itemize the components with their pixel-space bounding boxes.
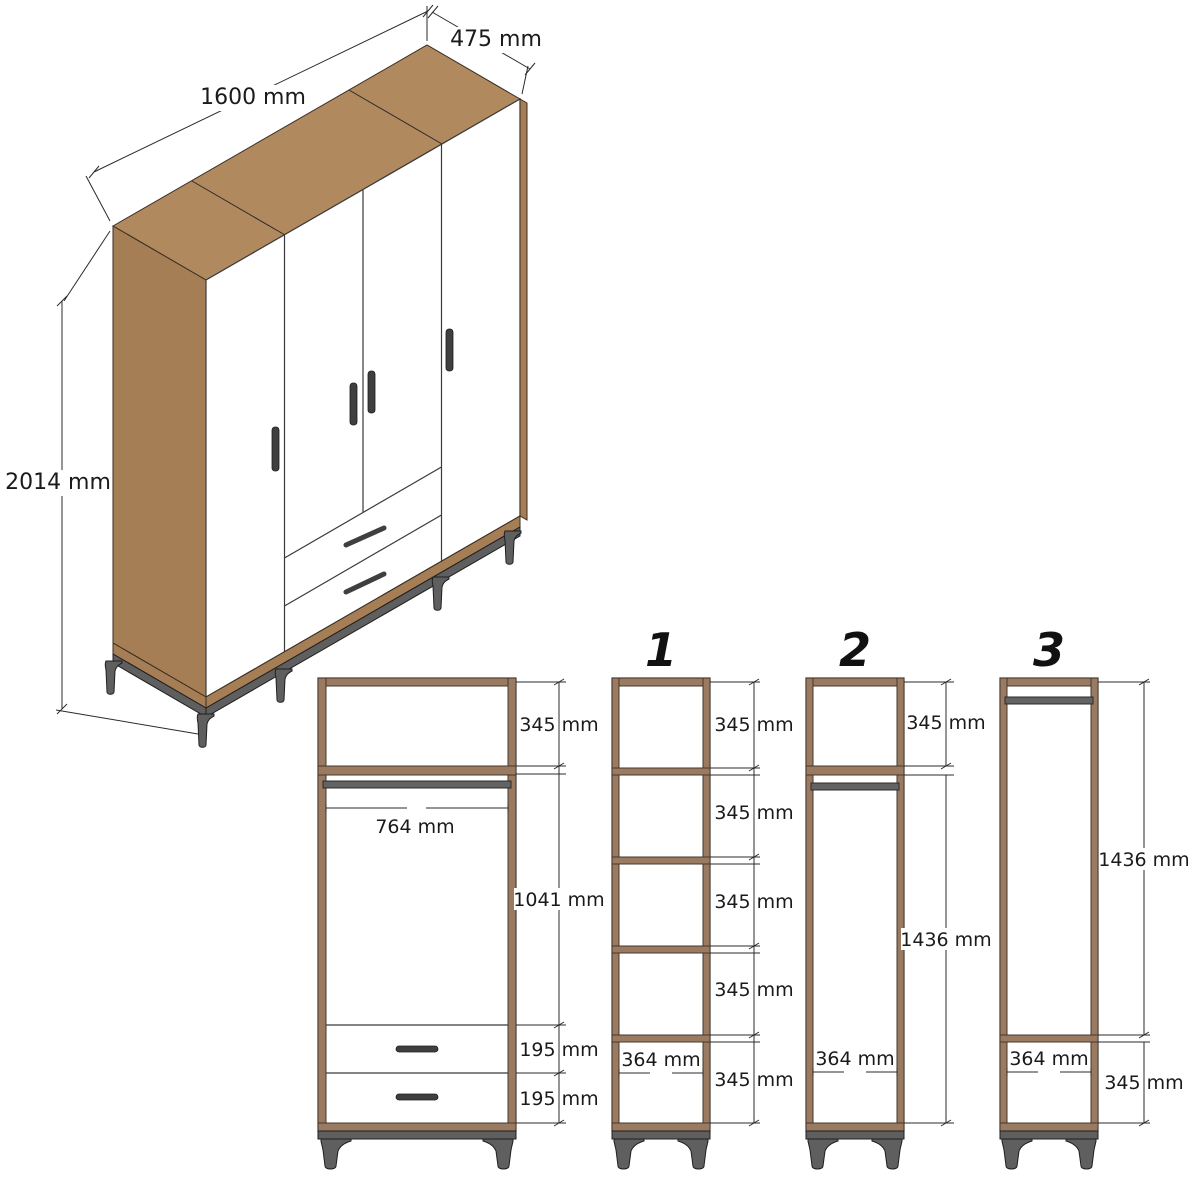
dim-label-section-1-c4: 345 mm <box>714 979 793 1001</box>
dim-label-section-1-c3: 345 mm <box>714 891 793 913</box>
dim-label-front-inner-width: 764 mm <box>375 816 454 838</box>
section-1-base-bar <box>612 1131 710 1139</box>
dim-label-front-hanging: 1041 mm <box>513 889 604 911</box>
section-3-shelf <box>1000 1035 1098 1042</box>
section-1-shelf <box>612 946 710 953</box>
section-2-leg <box>872 1139 902 1169</box>
section-3-number: 3 <box>1033 623 1065 677</box>
side-panel-3d <box>113 226 206 697</box>
dim-label-section-3-bottom: 345 mm <box>1104 1072 1183 1094</box>
section-3-leg <box>1066 1139 1096 1169</box>
wardrobe-3d-view: 1600 mm 475 mm 2014 mm <box>5 5 542 747</box>
dim-label-section-1-c2: 345 mm <box>714 802 793 824</box>
dim-section-2-right: 345 mm 1436 mm <box>900 679 993 1126</box>
section-3-hanging-rod <box>1005 697 1093 704</box>
dim-label-section-1-c5: 345 mm <box>714 1069 793 1091</box>
dim-section-3-right: 1436 mm 345 mm <box>1098 679 1191 1126</box>
front-hanging-rod <box>323 781 511 788</box>
door-handle-3d <box>272 427 279 471</box>
front-leg <box>321 1139 351 1169</box>
dim-section-1-right: 345 mm 345 mm 345 mm 345 mm 345 mm <box>710 679 794 1126</box>
section-2-view: 2 364 mm 345 mm <box>806 623 993 1169</box>
dim-label-section-2-width: 364 mm <box>815 1048 894 1070</box>
section-3-view: 3 364 mm 1436 m <box>1000 623 1191 1169</box>
dim-label-depth-3d: 475 mm <box>450 27 542 52</box>
technical-drawing-page: 1600 mm 475 mm 2014 mm <box>0 0 1195 1180</box>
dim-label-section-1-c1: 345 mm <box>714 714 793 736</box>
section-2-base-bar <box>806 1131 904 1139</box>
front-leg <box>483 1139 513 1169</box>
dim-label-front-top-shelf: 345 mm <box>519 714 598 736</box>
dim-label-front-drawer1: 195 mm <box>519 1039 598 1061</box>
dim-front-right: 345 mm 1041 mm 195 mm 195 mm <box>513 679 606 1126</box>
front-base-bar <box>318 1131 516 1139</box>
front-carcass <box>318 678 516 1131</box>
door-handle-3d <box>350 383 357 425</box>
section-1-number: 1 <box>645 623 677 677</box>
dim-label-section-2-top: 345 mm <box>906 712 985 734</box>
front-elevation-view: 764 mm 345 mm 1041 mm 195 mm 195 mm <box>318 678 606 1169</box>
leg-3d <box>197 714 214 747</box>
dim-label-section-3-width: 364 mm <box>1009 1048 1088 1070</box>
section-3-leg <box>1002 1139 1032 1169</box>
section-2-hanging-rod <box>811 783 899 790</box>
dim-label-front-drawer2: 195 mm <box>519 1088 598 1110</box>
section-1-view: 1 364 mm <box>612 623 794 1169</box>
dim-label-section-2-hanging: 1436 mm <box>900 929 991 951</box>
section-1-shelf <box>612 1035 710 1042</box>
section-2-leg <box>808 1139 838 1169</box>
wardrobe-drawing-svg: 1600 mm 475 mm 2014 mm <box>0 0 1195 1180</box>
section-1-shelf <box>612 857 710 864</box>
door-handle-3d <box>446 329 453 371</box>
right-edge-3d <box>520 99 527 520</box>
dim-label-section-3-hanging: 1436 mm <box>1098 849 1189 871</box>
section-3-base-bar <box>1000 1131 1098 1139</box>
leg-3d <box>432 577 449 610</box>
front-shelf <box>318 766 516 775</box>
front-drawer-handle <box>396 1094 438 1100</box>
section-1-shelf <box>612 768 710 775</box>
dim-label-height-3d: 2014 mm <box>5 470 111 495</box>
door-handle-3d <box>368 371 375 413</box>
section-1-leg <box>614 1139 644 1169</box>
dim-label-section-1-width: 364 mm <box>621 1049 700 1071</box>
front-drawer-handle <box>396 1046 438 1052</box>
leg-3d <box>275 669 292 702</box>
section-2-shelf <box>806 766 904 775</box>
section-1-leg <box>678 1139 708 1169</box>
section-2-number: 2 <box>839 623 871 677</box>
dim-label-width-3d: 1600 mm <box>200 85 306 110</box>
